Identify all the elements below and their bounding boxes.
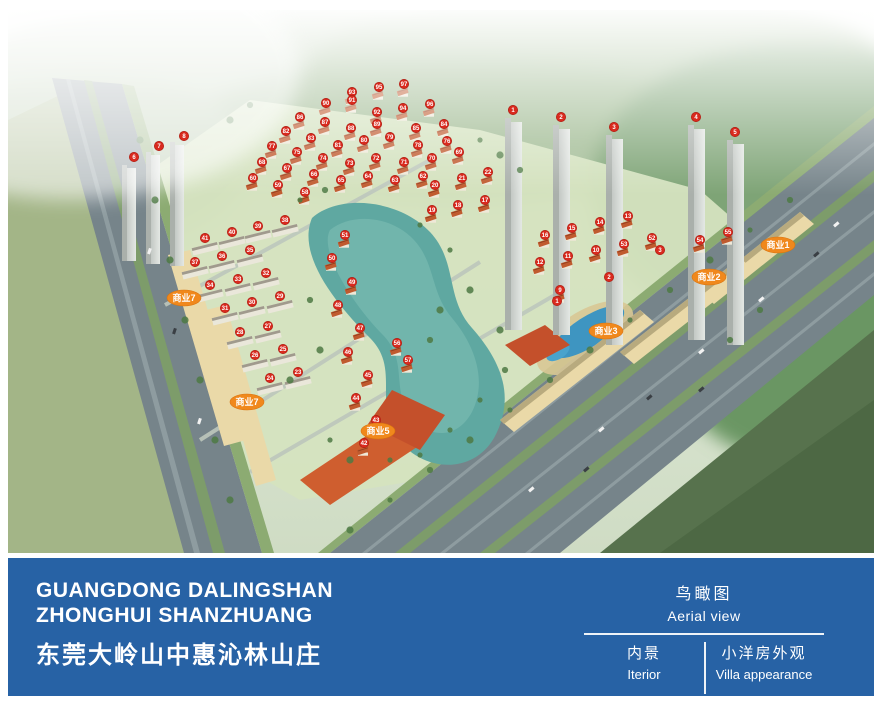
plot-marker: 74: [318, 153, 327, 162]
svg-text:86: 86: [297, 115, 304, 121]
svg-text:56: 56: [394, 341, 401, 347]
caption-cells: 内景 Iterior 小洋房外观 Villa appearance: [584, 642, 824, 682]
tree: [727, 337, 733, 343]
plot-marker: 29: [275, 291, 284, 300]
plot-marker: 12: [535, 257, 544, 266]
svg-text:46: 46: [345, 350, 352, 356]
tree: [706, 256, 713, 263]
svg-text:72: 72: [373, 156, 380, 162]
plot-marker: 87: [320, 117, 329, 126]
svg-text:90: 90: [323, 101, 330, 107]
plot-marker: 72: [371, 153, 380, 162]
svg-text:95: 95: [376, 85, 383, 91]
project-title-en-line2: ZHONGHUI SHANZHUANG: [36, 603, 333, 628]
caption-interior-en: Iterior: [584, 667, 704, 682]
plot-marker: 33: [233, 274, 242, 283]
svg-text:96: 96: [427, 102, 434, 108]
tree: [286, 376, 293, 383]
svg-text:26: 26: [252, 353, 259, 359]
plot-marker: 77: [267, 141, 276, 150]
tree: [166, 256, 173, 263]
svg-text:22: 22: [485, 170, 492, 176]
plot-marker: 66: [309, 169, 318, 178]
svg-text:24: 24: [267, 376, 274, 382]
svg-text:71: 71: [401, 160, 408, 166]
svg-text:19: 19: [429, 208, 436, 214]
plot-marker: 25: [278, 344, 287, 353]
plot-marker: 31: [220, 303, 229, 312]
svg-text:41: 41: [202, 236, 209, 242]
plot-marker: 86: [295, 112, 304, 121]
project-title: GUANGDONG DALINGSHAN ZHONGHUI SHANZHUANG…: [36, 578, 333, 670]
plot-marker: 39: [253, 221, 262, 230]
tree: [196, 376, 203, 383]
svg-text:25: 25: [280, 347, 287, 353]
svg-text:18: 18: [455, 203, 462, 209]
svg-text:20: 20: [432, 183, 439, 189]
svg-text:81: 81: [335, 143, 342, 149]
plot-marker: 7: [154, 141, 163, 150]
plot-marker: 9: [555, 285, 564, 294]
plot-marker: 70: [427, 153, 436, 162]
plot-marker: 51: [340, 230, 349, 239]
plot-marker: 2: [604, 272, 613, 281]
tree: [327, 437, 332, 442]
svg-text:15: 15: [569, 226, 576, 232]
commercial-label: 商业1: [761, 237, 795, 253]
plot-marker: 63: [390, 175, 399, 184]
svg-text:55: 55: [725, 230, 732, 236]
svg-text:70: 70: [429, 156, 436, 162]
tree: [436, 306, 443, 313]
svg-text:37: 37: [192, 260, 199, 266]
svg-text:10: 10: [593, 248, 600, 254]
svg-text:89: 89: [374, 122, 381, 128]
plot-marker: 59: [273, 180, 282, 189]
svg-text:78: 78: [415, 143, 422, 149]
plot-marker: 17: [480, 195, 489, 204]
svg-text:75: 75: [294, 150, 301, 156]
tree: [346, 526, 353, 533]
plot-marker: 92: [372, 107, 381, 116]
plot-marker: 3: [655, 245, 664, 254]
plot-marker: 69: [454, 147, 463, 156]
svg-text:65: 65: [338, 178, 345, 184]
svg-text:23: 23: [295, 370, 302, 376]
svg-text:73: 73: [347, 161, 354, 167]
svg-text:66: 66: [311, 172, 318, 178]
plot-marker: 53: [619, 239, 628, 248]
svg-text:54: 54: [697, 238, 704, 244]
plot-marker: 97: [399, 79, 408, 88]
svg-text:68: 68: [259, 160, 266, 166]
tree: [346, 456, 353, 463]
svg-text:29: 29: [277, 294, 284, 300]
aerial-rendering: 9395979091929496868788898584828381807978…: [8, 10, 874, 553]
plot-marker: 85: [411, 123, 420, 132]
svg-text:60: 60: [250, 176, 257, 182]
plot-marker: 23: [293, 367, 302, 376]
tree: [787, 197, 793, 203]
plot-marker: 64: [363, 171, 372, 180]
plot-marker: 84: [439, 119, 448, 128]
plot-marker: 8: [179, 131, 188, 140]
commercial-label: 商业3: [589, 323, 623, 339]
caption-primary-cn: 鸟瞰图: [584, 580, 824, 604]
tree: [586, 346, 593, 353]
tree: [211, 436, 218, 443]
svg-text:商业1: 商业1: [766, 239, 789, 250]
svg-text:42: 42: [361, 441, 368, 447]
plot-marker: 82: [281, 126, 290, 135]
svg-text:36: 36: [219, 254, 226, 260]
plot-marker: 40: [227, 227, 236, 236]
svg-text:32: 32: [263, 271, 270, 277]
svg-text:97: 97: [401, 82, 408, 88]
plot-marker: 27: [263, 321, 272, 330]
svg-text:47: 47: [357, 326, 364, 332]
plot-marker: 44: [351, 393, 360, 402]
plot-marker: 24: [265, 373, 274, 382]
tree: [181, 316, 188, 323]
plot-marker: 47: [355, 323, 364, 332]
plot-marker: 28: [235, 327, 244, 336]
svg-text:51: 51: [342, 233, 349, 239]
tree: [747, 227, 752, 232]
plot-marker: 52: [647, 233, 656, 242]
plot-marker: 95: [374, 82, 383, 91]
plot-marker: 16: [540, 230, 549, 239]
plot-marker: 35: [245, 245, 254, 254]
plot-marker: 1: [552, 296, 561, 305]
plot-marker: 15: [567, 223, 576, 232]
tree: [547, 377, 553, 383]
svg-text:87: 87: [322, 120, 329, 126]
tree: [466, 436, 473, 443]
tree: [297, 197, 302, 202]
svg-text:28: 28: [237, 330, 244, 336]
svg-text:63: 63: [392, 178, 399, 184]
tree: [502, 367, 508, 373]
svg-text:82: 82: [283, 129, 290, 135]
svg-text:58: 58: [302, 190, 309, 196]
plot-marker: 50: [327, 253, 336, 262]
plot-marker: 20: [430, 180, 439, 189]
plot-marker: 41: [200, 233, 209, 242]
plot-marker: 67: [282, 163, 291, 172]
tree: [316, 346, 323, 353]
plot-marker: 26: [250, 350, 259, 359]
plot-marker: 62: [418, 171, 427, 180]
svg-text:76: 76: [444, 139, 451, 145]
tree: [466, 286, 473, 293]
svg-text:11: 11: [565, 254, 572, 260]
svg-text:85: 85: [413, 126, 420, 132]
plot-marker: 34: [205, 280, 214, 289]
plot-marker: 68: [257, 157, 266, 166]
svg-text:88: 88: [348, 126, 355, 132]
tree: [417, 452, 422, 457]
svg-text:13: 13: [625, 214, 632, 220]
aerial-photo: 9395979091929496868788898584828381807978…: [8, 10, 874, 553]
svg-text:50: 50: [329, 256, 336, 262]
tree: [226, 496, 233, 503]
caption-cell-interior: 内景 Iterior: [584, 642, 704, 682]
caption-villa-cn: 小洋房外观: [704, 642, 824, 663]
svg-text:27: 27: [265, 324, 272, 330]
footer-bar: GUANGDONG DALINGSHAN ZHONGHUI SHANZHUANG…: [8, 558, 874, 696]
brochure-page: 9395979091929496868788898584828381807978…: [0, 0, 882, 701]
svg-text:84: 84: [441, 122, 448, 128]
tree: [447, 247, 452, 252]
svg-text:59: 59: [275, 183, 282, 189]
svg-text:17: 17: [482, 198, 489, 204]
plot-marker: 96: [425, 99, 434, 108]
plot-marker: 18: [453, 200, 462, 209]
plot-marker: 6: [129, 152, 138, 161]
plot-marker: 36: [217, 251, 226, 260]
plot-marker: 81: [333, 140, 342, 149]
plot-marker: 38: [280, 215, 289, 224]
svg-text:79: 79: [387, 135, 394, 141]
caption-rule: [584, 633, 824, 635]
tree: [427, 467, 433, 473]
svg-text:商业7: 商业7: [235, 396, 258, 407]
plot-marker: 89: [372, 119, 381, 128]
tree: [447, 427, 452, 432]
commercial-label: 商业7: [167, 290, 201, 306]
tree: [477, 397, 482, 402]
plot-marker: 1: [508, 105, 517, 114]
svg-text:38: 38: [282, 218, 289, 224]
svg-text:商业5: 商业5: [366, 425, 389, 436]
svg-text:64: 64: [365, 174, 372, 180]
plot-marker: 55: [723, 227, 732, 236]
svg-text:52: 52: [649, 236, 656, 242]
svg-text:77: 77: [269, 144, 276, 150]
commercial-label: 商业7: [230, 394, 264, 410]
svg-text:商业2: 商业2: [697, 271, 720, 282]
plot-marker: 21: [457, 173, 466, 182]
svg-text:62: 62: [420, 174, 427, 180]
plot-marker: 42: [359, 438, 368, 447]
plot-marker: 37: [190, 257, 199, 266]
plot-marker: 13: [623, 211, 632, 220]
tree: [627, 317, 632, 322]
plot-marker: 88: [346, 123, 355, 132]
tree: [307, 297, 313, 303]
caption-villa-en: Villa appearance: [704, 667, 824, 682]
svg-text:31: 31: [222, 306, 229, 312]
caption-interior-cn: 内景: [584, 642, 704, 663]
svg-text:74: 74: [320, 156, 327, 162]
caption-divider: [704, 642, 706, 694]
plot-marker: 58: [300, 187, 309, 196]
svg-text:34: 34: [207, 283, 214, 289]
svg-text:49: 49: [349, 280, 356, 286]
plot-marker: 45: [363, 370, 372, 379]
tree: [387, 497, 392, 502]
plot-marker: 32: [261, 268, 270, 277]
plot-marker: 73: [345, 158, 354, 167]
project-title-en-line1: GUANGDONG DALINGSHAN: [36, 578, 333, 603]
svg-text:12: 12: [537, 260, 544, 266]
tree: [427, 337, 433, 343]
svg-text:67: 67: [284, 166, 291, 172]
svg-text:48: 48: [335, 303, 342, 309]
caption-block: 鸟瞰图 Aerial view 内景 Iterior 小洋房外观 Villa a…: [584, 580, 824, 682]
plot-marker: 11: [563, 251, 572, 260]
plot-marker: 80: [359, 135, 368, 144]
plot-marker: 48: [333, 300, 342, 309]
svg-text:40: 40: [229, 230, 236, 236]
tree: [757, 307, 763, 313]
caption-cell-villa: 小洋房外观 Villa appearance: [704, 642, 824, 682]
plot-marker: 2: [556, 112, 565, 121]
svg-text:92: 92: [374, 110, 381, 116]
svg-text:53: 53: [621, 242, 628, 248]
svg-text:33: 33: [235, 277, 242, 283]
plot-marker: 60: [248, 173, 257, 182]
plot-marker: 5: [730, 127, 739, 136]
tree: [667, 287, 673, 293]
plot-marker: 75: [292, 147, 301, 156]
tree: [507, 407, 512, 412]
tree: [417, 222, 422, 227]
plot-marker: 10: [591, 245, 600, 254]
plot-marker: 94: [398, 103, 407, 112]
svg-text:94: 94: [400, 106, 407, 112]
svg-text:39: 39: [255, 224, 262, 230]
tree: [387, 457, 392, 462]
plot-marker: 14: [595, 217, 604, 226]
svg-text:69: 69: [456, 150, 463, 156]
commercial-label: 商业5: [361, 423, 395, 439]
svg-text:83: 83: [308, 136, 315, 142]
plot-marker: 83: [306, 133, 315, 142]
svg-text:14: 14: [597, 220, 604, 226]
svg-text:44: 44: [353, 396, 360, 402]
commercial-label: 商业2: [692, 269, 726, 285]
plot-marker: 4: [691, 112, 700, 121]
svg-text:商业7: 商业7: [172, 292, 195, 303]
plot-marker: 78: [413, 140, 422, 149]
tree: [151, 196, 158, 203]
svg-text:57: 57: [405, 358, 412, 364]
plot-marker: 54: [695, 235, 704, 244]
svg-text:91: 91: [349, 98, 356, 104]
svg-text:30: 30: [249, 300, 256, 306]
plot-marker: 76: [442, 136, 451, 145]
svg-text:商业3: 商业3: [594, 325, 617, 336]
svg-text:35: 35: [247, 248, 254, 254]
project-title-cn: 东莞大岭山中惠沁林山庄: [36, 635, 333, 670]
plot-marker: 91: [347, 95, 356, 104]
plot-marker: 71: [399, 157, 408, 166]
plot-marker: 22: [483, 167, 492, 176]
svg-text:45: 45: [365, 373, 372, 379]
tree: [496, 326, 503, 333]
plot-marker: 46: [343, 347, 352, 356]
caption-primary-en: Aerial view: [584, 608, 824, 624]
plot-marker: 56: [392, 338, 401, 347]
plot-marker: 49: [347, 277, 356, 286]
svg-text:16: 16: [542, 233, 549, 239]
plot-marker: 65: [336, 175, 345, 184]
plot-marker: 79: [385, 132, 394, 141]
plot-marker: 90: [321, 98, 330, 107]
plot-marker: 30: [247, 297, 256, 306]
plot-marker: 19: [427, 205, 436, 214]
svg-text:80: 80: [361, 138, 368, 144]
plot-marker: 57: [403, 355, 412, 364]
plot-marker: 3: [609, 122, 618, 131]
svg-text:21: 21: [459, 176, 466, 182]
